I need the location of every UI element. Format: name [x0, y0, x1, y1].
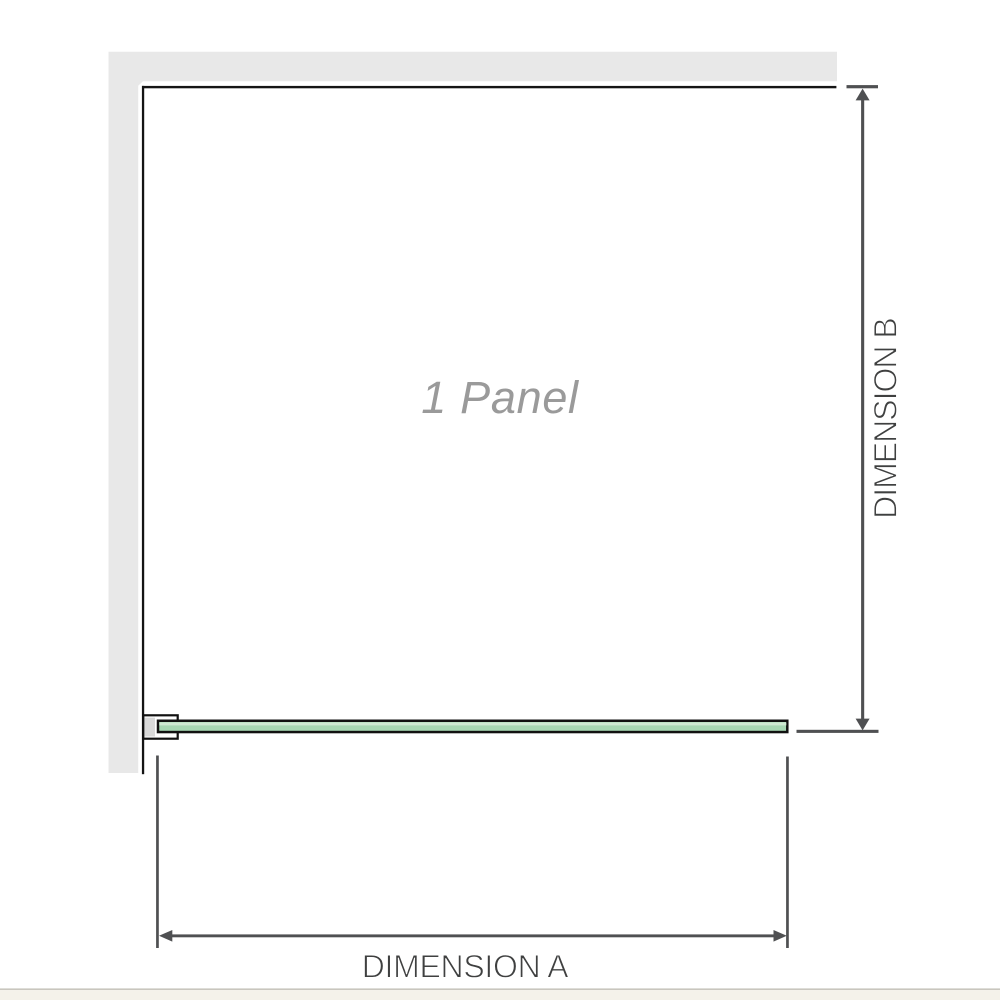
svg-text:DIMENSION A: DIMENSION A [362, 949, 569, 985]
svg-text:1 Panel: 1 Panel [421, 372, 580, 423]
svg-text:DIMENSION B: DIMENSION B [867, 318, 903, 519]
